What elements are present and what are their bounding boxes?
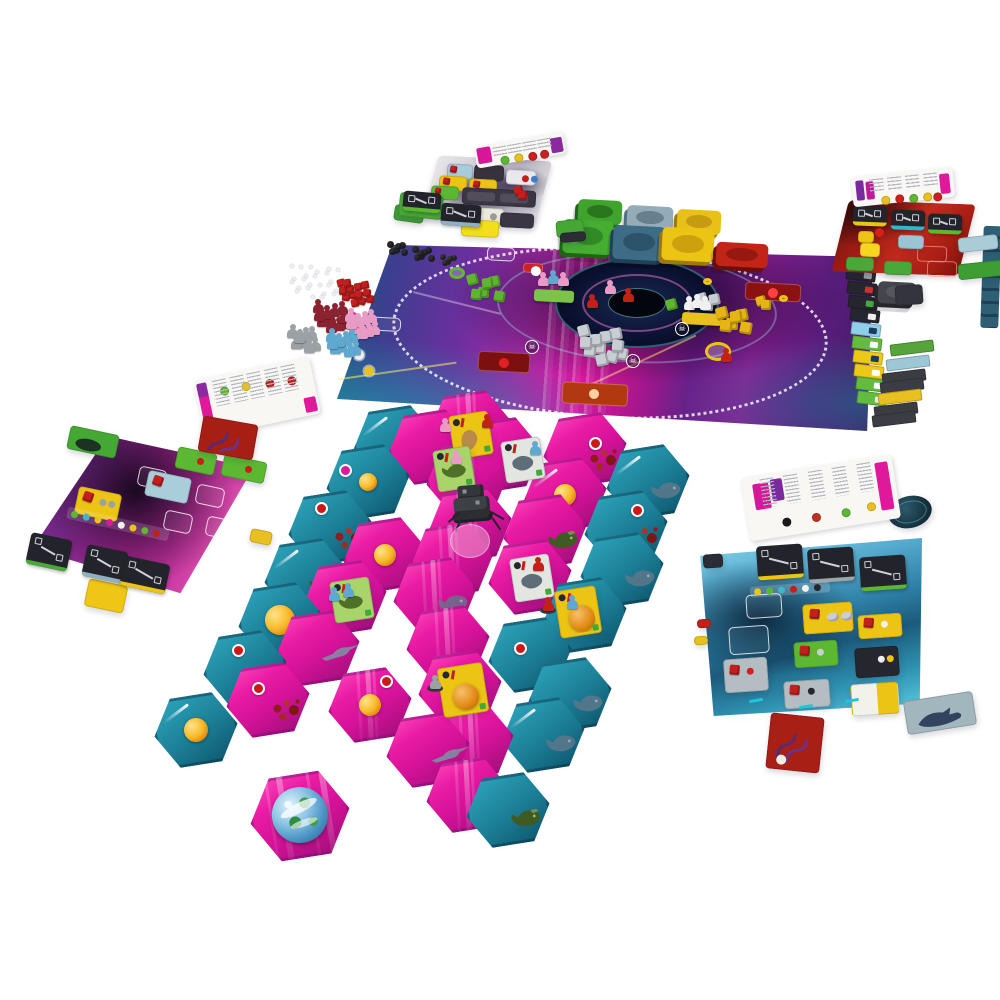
card-corner xyxy=(592,624,599,631)
token-stack[interactable] xyxy=(715,242,768,269)
cell-chip xyxy=(864,272,873,279)
white-crystals[interactable] xyxy=(318,283,322,287)
meeple-body xyxy=(430,680,441,689)
meeple-body xyxy=(543,602,554,611)
circuit-trace xyxy=(769,558,789,564)
black-bits[interactable] xyxy=(417,250,424,257)
circuit-node xyxy=(949,218,956,225)
white-crystals[interactable] xyxy=(302,277,306,281)
white-crystals[interactable] xyxy=(295,289,299,293)
card[interactable] xyxy=(860,243,880,258)
ref-band xyxy=(939,173,951,194)
meeple-body xyxy=(329,592,340,601)
circuit-trace xyxy=(865,213,873,217)
white-crystals[interactable] xyxy=(327,283,331,287)
card-dot xyxy=(531,175,538,182)
meeple-body xyxy=(623,293,634,302)
strip-icon xyxy=(766,587,773,594)
cell-chip xyxy=(867,314,876,321)
circuit-node xyxy=(893,573,900,580)
ref-text-lines xyxy=(856,462,874,493)
strip-icon xyxy=(140,526,148,534)
ref-text-lines xyxy=(537,138,553,150)
die-cube[interactable] xyxy=(482,278,494,290)
ref-icon xyxy=(933,192,943,202)
card[interactable] xyxy=(898,235,924,250)
circuit-card[interactable] xyxy=(891,209,926,230)
token-art xyxy=(636,210,664,225)
white-crystals[interactable] xyxy=(313,274,317,278)
ship-light xyxy=(475,500,479,504)
ref-icon xyxy=(841,508,851,518)
card-icon xyxy=(513,561,521,569)
die-cube[interactable] xyxy=(363,289,372,298)
die-cube[interactable] xyxy=(518,191,527,200)
token-art xyxy=(726,247,758,262)
card-art-whale xyxy=(912,702,969,731)
ref-icon xyxy=(811,512,821,522)
board-game-product-photo: ☠☠☠ xyxy=(0,0,1000,1000)
card-meeple-pink[interactable] xyxy=(451,450,462,464)
card[interactable] xyxy=(500,212,535,229)
meeple-body xyxy=(304,344,315,353)
card[interactable] xyxy=(884,261,912,276)
ref-text-lines xyxy=(832,466,850,497)
ref-icon xyxy=(923,192,933,202)
token-art xyxy=(587,204,614,219)
token-stack[interactable] xyxy=(661,227,715,263)
circuit-card[interactable] xyxy=(402,190,442,213)
white-crystals[interactable] xyxy=(325,271,329,275)
die-cube[interactable] xyxy=(809,609,820,620)
card-meeple-blue[interactable] xyxy=(329,587,340,601)
ship-light xyxy=(462,489,466,493)
meeple-body xyxy=(357,330,368,339)
strip-icon xyxy=(814,584,821,591)
circuit-node xyxy=(912,214,919,221)
comet-icon xyxy=(362,416,388,436)
card-corner xyxy=(365,609,372,616)
panel-dot xyxy=(767,288,778,299)
card-icon xyxy=(436,453,444,461)
hex-badge xyxy=(631,504,644,517)
white-crystals[interactable] xyxy=(290,264,294,268)
meeple-body xyxy=(344,348,355,357)
white-crystals[interactable] xyxy=(309,265,313,269)
card[interactable] xyxy=(858,231,874,244)
red-board-die[interactable] xyxy=(875,228,884,237)
die-cube[interactable] xyxy=(450,165,458,173)
card[interactable] xyxy=(894,284,923,306)
circuit-node xyxy=(55,554,63,562)
meeple-body xyxy=(721,353,732,362)
card-dot xyxy=(196,457,204,465)
card-corner xyxy=(484,445,491,452)
die-cube[interactable] xyxy=(580,337,592,349)
ref-text-lines xyxy=(808,470,826,501)
card-meeple-blue[interactable] xyxy=(530,441,541,455)
board-meeple-pink[interactable] xyxy=(558,272,569,286)
meeple-body xyxy=(327,340,338,349)
cell-chip xyxy=(870,341,879,348)
card[interactable] xyxy=(249,528,273,546)
die-cube[interactable] xyxy=(863,618,874,629)
white-crystals[interactable] xyxy=(306,286,310,290)
meeple-body xyxy=(700,301,711,310)
circuit-trace xyxy=(940,221,948,225)
die-cube[interactable] xyxy=(151,474,164,487)
panel-dot xyxy=(588,389,599,400)
board-meeple-red[interactable] xyxy=(721,348,732,362)
ref-text-lines xyxy=(246,371,265,399)
planet-icon xyxy=(182,716,209,743)
card[interactable] xyxy=(66,425,120,459)
white-crystals[interactable] xyxy=(332,292,336,296)
ref-text-lines xyxy=(783,473,801,504)
warp-band xyxy=(455,761,462,832)
board-meeple-red[interactable] xyxy=(623,288,634,302)
comet-icon xyxy=(163,703,189,723)
planet-icon xyxy=(372,542,397,567)
ref-text-lines xyxy=(887,176,902,191)
ref-text-lines xyxy=(905,174,920,189)
strip-icon xyxy=(82,513,90,521)
pink-meeples[interactable] xyxy=(357,325,368,339)
white-crystals[interactable] xyxy=(290,280,294,284)
card-dot xyxy=(522,175,529,182)
black-bits[interactable] xyxy=(389,248,396,255)
card[interactable] xyxy=(854,646,900,679)
ref-band xyxy=(303,396,318,413)
ref-band xyxy=(874,461,894,510)
psychic-field-token[interactable] xyxy=(450,524,490,558)
card[interactable] xyxy=(793,639,839,668)
strip-icon xyxy=(152,529,160,537)
cell-chip xyxy=(865,286,874,293)
meeple-body xyxy=(451,455,462,464)
card-dot xyxy=(881,620,888,627)
card-icon xyxy=(441,671,449,679)
ref-text-lines xyxy=(229,375,248,403)
card-corner xyxy=(545,588,552,595)
card-meeple-red[interactable] xyxy=(543,597,554,611)
die-cube[interactable] xyxy=(664,298,677,311)
card-meeple-red[interactable] xyxy=(533,557,544,571)
card-dot xyxy=(746,667,753,674)
red-creature-card[interactable] xyxy=(765,712,825,773)
vortex-core xyxy=(608,288,666,318)
die-cube[interactable] xyxy=(789,685,800,696)
hex-badge xyxy=(514,642,527,655)
strip-icon xyxy=(790,586,797,593)
card-dot xyxy=(878,655,885,662)
die-cube[interactable] xyxy=(612,339,625,352)
platform-tile[interactable] xyxy=(534,289,575,303)
comet-icon xyxy=(615,455,641,475)
card-dot xyxy=(244,465,252,473)
meeple-body xyxy=(605,285,616,294)
die-cube[interactable] xyxy=(729,665,740,676)
reference-card[interactable] xyxy=(741,455,901,542)
ref-text-lines xyxy=(923,172,938,187)
strip-icon xyxy=(754,588,761,595)
cell-chip xyxy=(872,369,881,376)
card-inner xyxy=(467,191,495,201)
meeple-body xyxy=(440,423,451,432)
circuit-card[interactable] xyxy=(807,546,855,583)
token-art xyxy=(686,214,713,229)
circuit-card[interactable] xyxy=(928,213,963,234)
meeple-body xyxy=(558,277,569,286)
cell-chip xyxy=(871,355,880,362)
strip-icon xyxy=(94,516,102,524)
card-corner xyxy=(536,469,543,476)
strip-icon xyxy=(129,524,137,532)
card[interactable] xyxy=(694,636,709,646)
card[interactable] xyxy=(857,612,903,639)
card-slot xyxy=(728,625,770,656)
circuit-node xyxy=(874,210,881,217)
cell-chip xyxy=(868,328,877,335)
card-dot xyxy=(99,498,107,506)
die-cube[interactable] xyxy=(760,300,770,310)
circuit-node xyxy=(154,576,162,584)
ref-text-lines xyxy=(281,364,300,392)
circuit-node xyxy=(841,565,848,572)
cell-chip xyxy=(866,300,875,307)
board-panel xyxy=(745,282,802,303)
blue-meeples[interactable] xyxy=(344,343,355,357)
hazard-skull-icon: ☠ xyxy=(525,340,539,354)
token-art xyxy=(623,232,655,252)
circuit-node xyxy=(34,537,42,545)
card[interactable] xyxy=(846,257,874,272)
ref-band xyxy=(476,146,493,164)
exploration-card[interactable] xyxy=(436,662,489,719)
ref-text-lines xyxy=(263,367,282,395)
card-mark xyxy=(522,561,526,570)
die-cube[interactable] xyxy=(343,278,352,287)
blue-meeples[interactable] xyxy=(327,335,338,349)
board-meeple-pink[interactable] xyxy=(605,280,616,294)
meeple-body xyxy=(567,600,578,609)
card-slot xyxy=(927,260,958,277)
black-bits[interactable] xyxy=(387,241,394,248)
panel-dot xyxy=(499,357,510,368)
ref-icon xyxy=(539,149,549,159)
card-dot xyxy=(490,213,497,220)
card-meeple-blue[interactable] xyxy=(567,595,578,609)
meeple-body xyxy=(587,299,598,308)
die-cube[interactable] xyxy=(442,177,450,185)
hex-badge xyxy=(315,502,328,515)
strip-icon xyxy=(802,585,809,592)
card-meeple-blue[interactable] xyxy=(343,583,354,597)
circuit-node xyxy=(812,553,819,560)
card-meeple-pink[interactable] xyxy=(440,418,451,432)
die-cube[interactable] xyxy=(799,645,810,656)
maroon-meeples[interactable] xyxy=(314,307,325,321)
ref-band xyxy=(855,180,865,201)
strip-icon xyxy=(778,586,785,593)
strip-icon xyxy=(105,518,113,526)
ref-text-lines xyxy=(869,178,884,193)
circuit-trace xyxy=(872,569,892,575)
station-marker xyxy=(779,295,788,302)
white-crystals[interactable] xyxy=(336,268,340,272)
circuit-node xyxy=(864,561,871,568)
die-cube[interactable] xyxy=(470,288,482,300)
circuit-node xyxy=(111,566,119,574)
card[interactable] xyxy=(697,619,712,629)
hex-badge xyxy=(589,437,602,450)
card-meeple-red[interactable] xyxy=(482,414,493,428)
hex-badge xyxy=(232,644,245,657)
ref-icon xyxy=(782,517,792,527)
circuit-trace xyxy=(415,198,427,204)
circuit-node xyxy=(790,562,797,569)
card[interactable] xyxy=(723,657,769,694)
die-cube[interactable] xyxy=(739,321,753,335)
card-mark xyxy=(513,444,517,453)
card-corner xyxy=(479,702,486,709)
card-dot xyxy=(108,500,116,508)
reference-card[interactable] xyxy=(851,167,956,207)
die-cube[interactable] xyxy=(81,491,94,504)
board-meeple-red[interactable] xyxy=(587,294,598,308)
station-marker xyxy=(449,267,465,279)
card-art-tentacle xyxy=(204,428,250,457)
card[interactable] xyxy=(506,169,537,186)
station-marker xyxy=(703,278,712,285)
card-art-tentacle xyxy=(772,730,817,769)
circuit-trace xyxy=(453,210,467,217)
meeple-body xyxy=(343,588,354,597)
die-cube[interactable] xyxy=(493,290,506,303)
card-art-planet xyxy=(444,678,484,714)
circuit-trace xyxy=(41,546,56,555)
ref-text-lines xyxy=(212,378,231,406)
circuit-card[interactable] xyxy=(440,203,481,228)
earth-clouds xyxy=(290,815,319,831)
die-cube[interactable] xyxy=(339,287,347,295)
circuit-trace xyxy=(903,217,911,221)
card[interactable] xyxy=(802,601,854,634)
hex-badge xyxy=(252,682,265,695)
card-icon xyxy=(504,444,512,452)
card[interactable] xyxy=(703,553,724,568)
strip-icon xyxy=(70,510,78,518)
card-dot xyxy=(808,687,815,694)
black-bits[interactable] xyxy=(395,243,402,250)
circuit-trace xyxy=(820,561,840,567)
circuit-trace xyxy=(97,558,112,567)
circuit-card[interactable] xyxy=(756,543,804,580)
card-icon xyxy=(452,418,460,426)
circuit-card[interactable] xyxy=(859,554,907,591)
meeple-body xyxy=(482,419,493,428)
board-panel xyxy=(478,351,531,374)
board-meeple-white[interactable] xyxy=(700,296,711,310)
card-mark xyxy=(444,453,448,462)
card-art-grayc xyxy=(516,567,550,599)
circuit-card[interactable] xyxy=(853,205,888,226)
circuit-node xyxy=(468,211,475,218)
board-panel xyxy=(561,381,628,406)
card-mark xyxy=(461,418,465,427)
die-oval xyxy=(840,611,853,621)
card-dot xyxy=(817,648,824,655)
strip-icon xyxy=(117,521,125,529)
comet-icon xyxy=(273,549,299,569)
card-meeple-gray[interactable] xyxy=(430,675,441,689)
hazard-skull-icon: ☠ xyxy=(675,322,689,336)
ref-text-lines xyxy=(522,140,538,152)
hex-badge xyxy=(339,464,352,477)
circuit-trace xyxy=(135,568,153,579)
ref-icon xyxy=(866,502,876,512)
circuit-node xyxy=(90,549,98,557)
token-art xyxy=(672,234,704,254)
card-mark xyxy=(451,671,455,680)
track-node xyxy=(364,366,374,376)
comet-icon xyxy=(510,708,536,728)
hex-badge xyxy=(380,675,393,688)
white-crystals[interactable] xyxy=(299,265,303,269)
card-art-darkblob xyxy=(72,434,113,456)
token-stack[interactable] xyxy=(612,225,666,262)
meeple-body xyxy=(530,446,541,455)
card-icon xyxy=(558,594,566,602)
card-dot xyxy=(887,654,894,661)
meeple-body xyxy=(314,312,325,321)
circuit-node xyxy=(761,550,768,557)
circuit-node xyxy=(428,197,436,205)
meeple-body xyxy=(533,562,544,571)
exploration-card[interactable] xyxy=(554,585,603,639)
earth-hex-tile[interactable] xyxy=(244,767,356,866)
planet-icon xyxy=(358,472,379,493)
die-oval xyxy=(826,612,839,622)
hazard-skull-icon: ☠ xyxy=(626,354,640,368)
ref-band xyxy=(196,382,209,398)
card-slot xyxy=(487,246,516,261)
gray-meeples[interactable] xyxy=(304,339,315,353)
